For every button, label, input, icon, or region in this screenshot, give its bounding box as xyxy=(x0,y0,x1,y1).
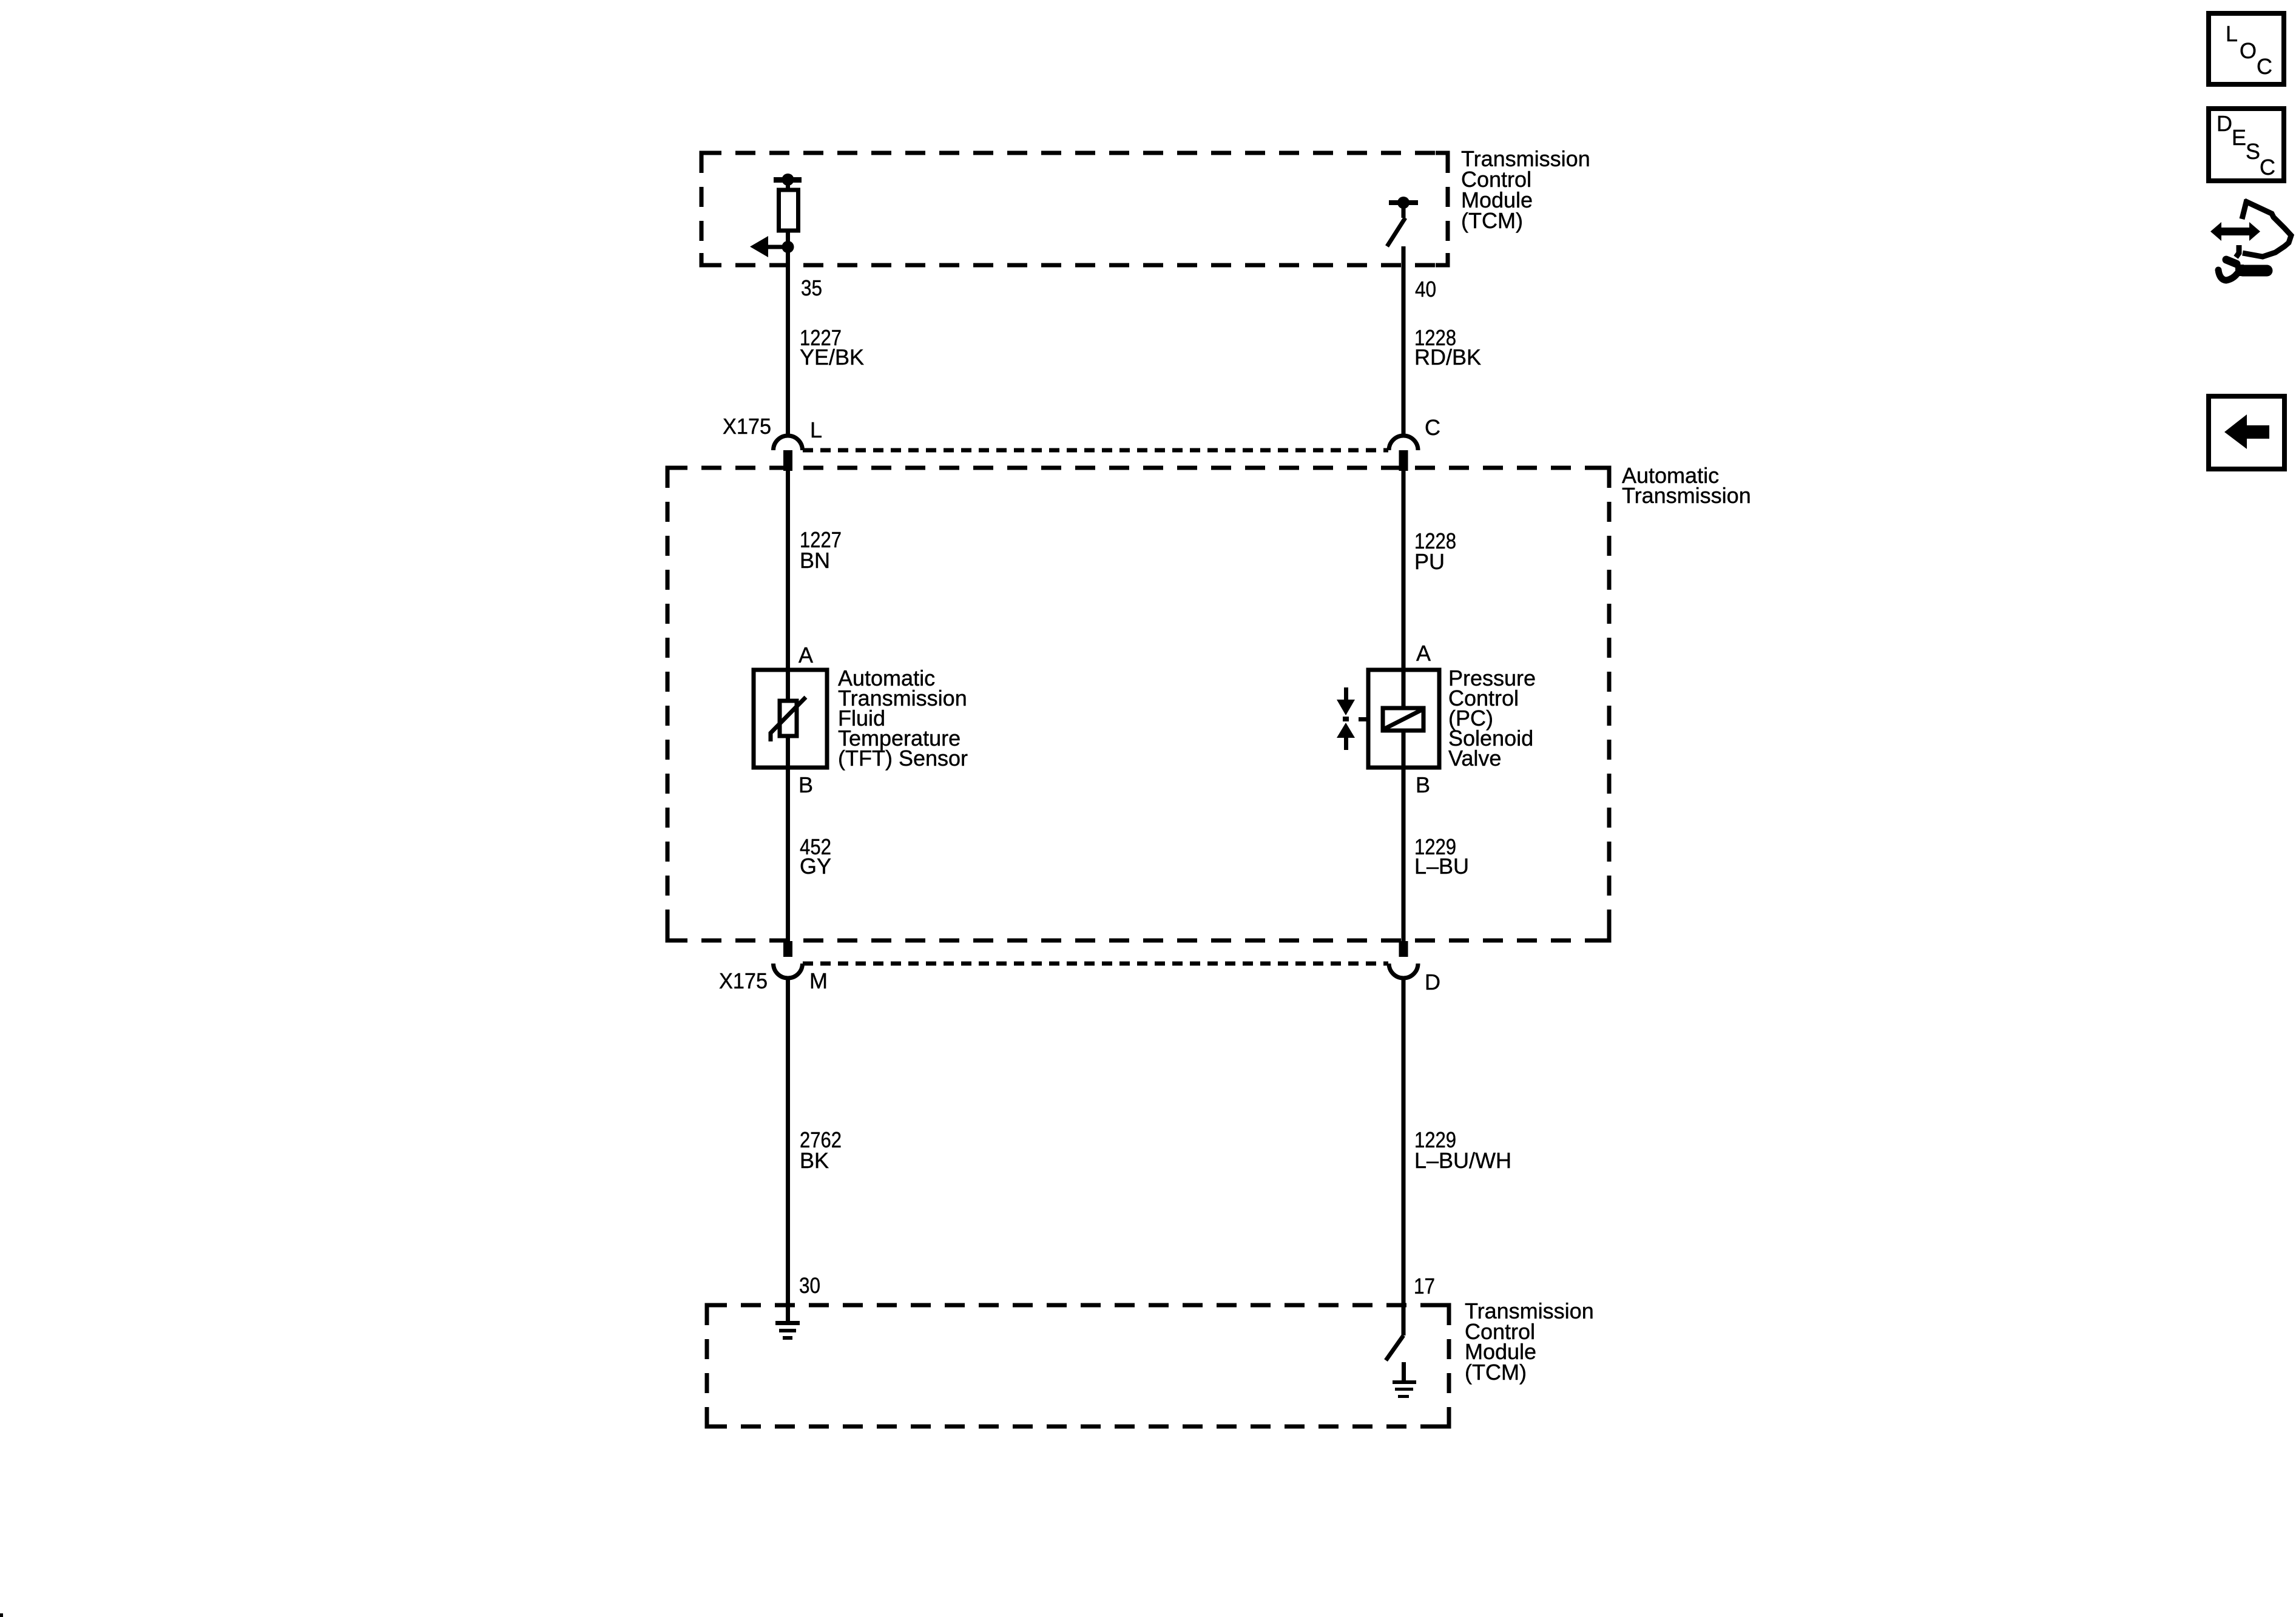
svg-text:A: A xyxy=(799,643,813,667)
svg-text:L: L xyxy=(2226,21,2238,46)
svg-text:X175: X175 xyxy=(723,414,771,439)
svg-text:C: C xyxy=(1425,415,1440,440)
svg-text:GY: GY xyxy=(800,854,831,879)
svg-text:40: 40 xyxy=(1415,277,1436,302)
svg-text:L: L xyxy=(810,417,822,442)
svg-text:Transmission: Transmission xyxy=(1622,483,1751,508)
svg-text:L–BU: L–BU xyxy=(1414,854,1469,879)
svg-text:BN: BN xyxy=(800,548,830,573)
svg-text:30: 30 xyxy=(799,1273,820,1298)
svg-text:L–BU/WH: L–BU/WH xyxy=(1414,1148,1511,1173)
svg-text:M: M xyxy=(809,968,828,993)
svg-text:17: 17 xyxy=(1414,1274,1435,1298)
svg-text:35: 35 xyxy=(801,275,822,300)
svg-text:X175: X175 xyxy=(719,968,768,993)
svg-text:YE/BK: YE/BK xyxy=(800,345,864,370)
svg-text:S: S xyxy=(2246,139,2260,164)
svg-text:(TCM): (TCM) xyxy=(1465,1360,1527,1385)
svg-text:O: O xyxy=(2240,38,2257,63)
svg-text:D: D xyxy=(2217,111,2232,136)
svg-text:PU: PU xyxy=(1414,549,1445,574)
svg-text:B: B xyxy=(799,772,813,797)
svg-text:D: D xyxy=(1425,970,1440,994)
svg-text:(TCM): (TCM) xyxy=(1461,208,1523,233)
svg-text:C: C xyxy=(2260,155,2275,180)
svg-text:B: B xyxy=(1416,772,1430,797)
svg-text:RD/BK: RD/BK xyxy=(1414,345,1481,370)
svg-text:E: E xyxy=(2232,125,2246,150)
svg-text:Valve: Valve xyxy=(1448,746,1501,771)
svg-text:A: A xyxy=(1416,641,1431,666)
svg-text:(TFT) Sensor: (TFT) Sensor xyxy=(838,746,968,771)
svg-text:BK: BK xyxy=(800,1148,829,1173)
svg-text:C: C xyxy=(2257,54,2272,79)
